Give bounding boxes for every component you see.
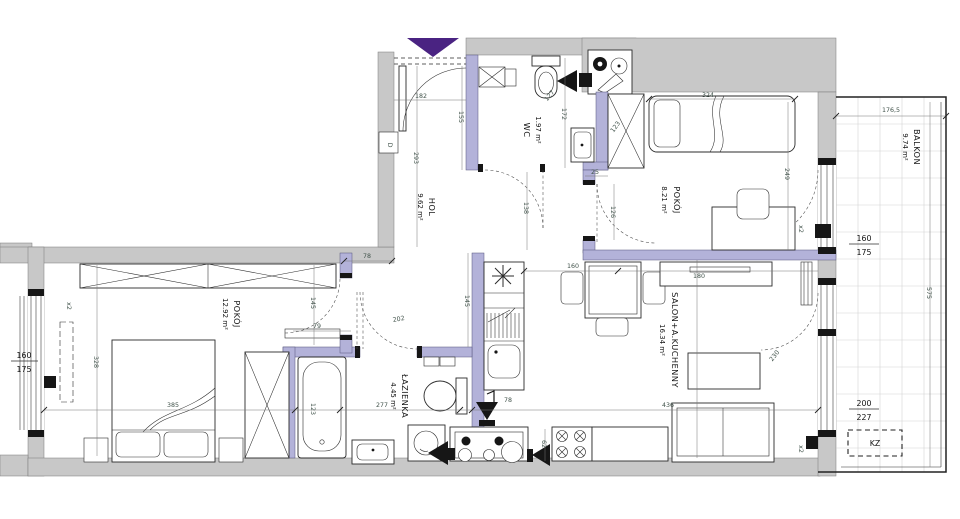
room-label-bathroom: ŁAZIENKA [400, 373, 410, 418]
entrance-door-leaf [399, 66, 406, 131]
plumbing-block [446, 448, 455, 460]
room-label-bedroom2: POKÓJ [672, 186, 683, 214]
dim-balcony-depth: 575 [925, 287, 932, 299]
wc-sink-tap-icon [581, 144, 584, 147]
kitchen-sink [488, 345, 520, 378]
tap-icon [495, 437, 504, 446]
dim-hall-left: 293 [412, 152, 419, 164]
jamb-bedroom1-bottom [340, 335, 352, 340]
dim-bathroom-width: 277 [376, 402, 388, 409]
dim-bedroom2-height: 249 [783, 168, 790, 180]
window-cap [818, 278, 836, 285]
window-cap [818, 329, 836, 336]
window-connector [806, 436, 818, 449]
wall-wc-left [466, 55, 478, 170]
window-connector [815, 224, 831, 238]
label-balcony-window-w: 160 [857, 234, 872, 243]
dim-corridor-left: 145 [309, 297, 316, 309]
plumbing-block [579, 73, 592, 87]
room-area-bathroom: 4.45 m² [389, 382, 397, 410]
nightstand [84, 438, 108, 462]
sink-bowl-icon [459, 449, 472, 462]
room-label-hol: HOL [427, 198, 437, 217]
installation-shaft-niche [588, 50, 632, 94]
dim-livingroom-width: 436 [662, 402, 674, 409]
dim-hall-seg2: 138 [522, 202, 529, 214]
window-cap [28, 430, 44, 437]
pillow [164, 432, 208, 457]
room-label-balcony: BALKON [912, 129, 922, 165]
washbasin-bowl [357, 444, 388, 460]
plumbing-block [479, 420, 495, 426]
jamb-bedroom1-top [340, 273, 352, 278]
dim-wc-height: 172 [560, 108, 567, 120]
cooker-point-icon [492, 265, 514, 287]
dim-bedroom1-door: 79 [313, 323, 321, 330]
plumbing-block [527, 449, 533, 462]
sideboard [660, 262, 772, 286]
counter [592, 427, 668, 461]
wall-kitchen-left [472, 253, 484, 427]
wall-wc-right [596, 92, 608, 170]
label-left-window-h: 175 [17, 365, 32, 374]
toilet-bowl [424, 381, 456, 411]
wall-livingroom-top [583, 250, 836, 260]
pillow [116, 432, 160, 457]
window-cap [818, 430, 836, 437]
label-left-window-w: 160 [17, 351, 32, 360]
chair [596, 318, 628, 336]
towel-radiator [424, 357, 439, 366]
dim-balcony-width: 176,5 [882, 107, 900, 114]
jamb-bathroom-right [417, 346, 422, 358]
bathtub-drain-icon [320, 440, 324, 444]
sink-bowl-icon [484, 450, 495, 461]
dim-bedroom1-width: 385 [167, 402, 179, 409]
pillow [654, 100, 680, 147]
radiator [801, 262, 812, 305]
label-bedroom2-window-count: x2 [797, 225, 804, 233]
bedroom1-door-leaf [285, 329, 340, 338]
jamb-wc-left [478, 164, 483, 172]
window-cap [818, 158, 836, 165]
washbasin-tap-icon [372, 449, 375, 452]
room-area-hol: 9.62 m² [416, 193, 424, 221]
pipe-core-icon [598, 62, 603, 67]
label-balcony-door-h: 227 [857, 413, 872, 422]
bathtub-inner [303, 362, 341, 451]
window-connector [44, 376, 56, 388]
room-label-wc: WC [522, 123, 532, 138]
label-shaft-kz: KZ [870, 439, 880, 448]
label-door-box: D [386, 143, 393, 148]
room-area-wc: 1.97 m² [534, 116, 542, 144]
dim-hall-width: 182 [415, 93, 427, 100]
wc-cabinet-small [505, 69, 516, 86]
dim-stove: 62 [540, 440, 547, 448]
dim-kitchen-passage: 78 [504, 397, 512, 404]
jamb-bedroom2-top [583, 180, 595, 185]
floor-plan-page: HOL 9.62 m² WC 1.97 m² POKÓJ 8.21 m² BAL… [0, 0, 960, 519]
room-area-bedroom2: 8.21 m² [660, 186, 668, 214]
chair [561, 272, 583, 304]
label-balcony-window-h: 175 [857, 248, 872, 257]
dim-kitchen-wall: 145 [463, 295, 470, 307]
coffee-table [688, 353, 760, 389]
room-area-livingroom: 16.34 m² [658, 324, 666, 356]
room-area-balcony: 9.74 m² [901, 133, 909, 161]
dim-hall-seg1: 155 [457, 111, 464, 123]
label-balcony-door-w: 200 [857, 399, 872, 408]
window-cap [818, 247, 836, 254]
dim-bedroom2-door: 126 [609, 206, 616, 218]
wc-toilet-tank [532, 56, 560, 66]
dim-kitchen-width: 160 [567, 263, 579, 270]
dim-wc-step: 25 [591, 169, 599, 176]
tap-icon [462, 437, 471, 446]
sink-bowl-large-icon [502, 442, 523, 463]
window-cap [28, 289, 44, 296]
nightstand [219, 438, 243, 462]
room-label-bedroom1: POKÓJ [232, 300, 243, 328]
room-area-bedroom1: 12.92 m² [221, 298, 229, 330]
dim-bedroom1-height: 328 [92, 356, 99, 368]
wall-top-left-wing [0, 247, 394, 263]
dim-bedroom2-bed: 324 [702, 92, 714, 99]
towel-radiator [440, 357, 455, 366]
jamb-bedroom2-bottom [583, 236, 595, 241]
dim-sideboard: 180 [693, 273, 705, 280]
radiator [60, 322, 73, 402]
desk-chair [737, 189, 769, 219]
kitchen-sink-tap-icon [494, 350, 497, 353]
jamb-bathroom-left [355, 346, 360, 358]
wall-bathroom-top-right [417, 347, 472, 357]
label-livingroom-window-count: x2 [797, 445, 804, 453]
label-left-window-count: x2 [65, 302, 72, 310]
dim-hall-door: 78 [363, 253, 371, 260]
pipe2-core-icon [618, 65, 621, 68]
room-label-livingroom: SALON+A.KUCHENNY [670, 292, 680, 388]
dining-table-top [589, 266, 637, 314]
jamb-wc-right [540, 164, 545, 172]
wall-bottom-left-stub [0, 455, 28, 476]
dim-bathtub: 123 [309, 403, 316, 415]
floor-plan-drawing: HOL 9.62 m² WC 1.97 m² POKÓJ 8.21 m² BAL… [0, 0, 960, 519]
